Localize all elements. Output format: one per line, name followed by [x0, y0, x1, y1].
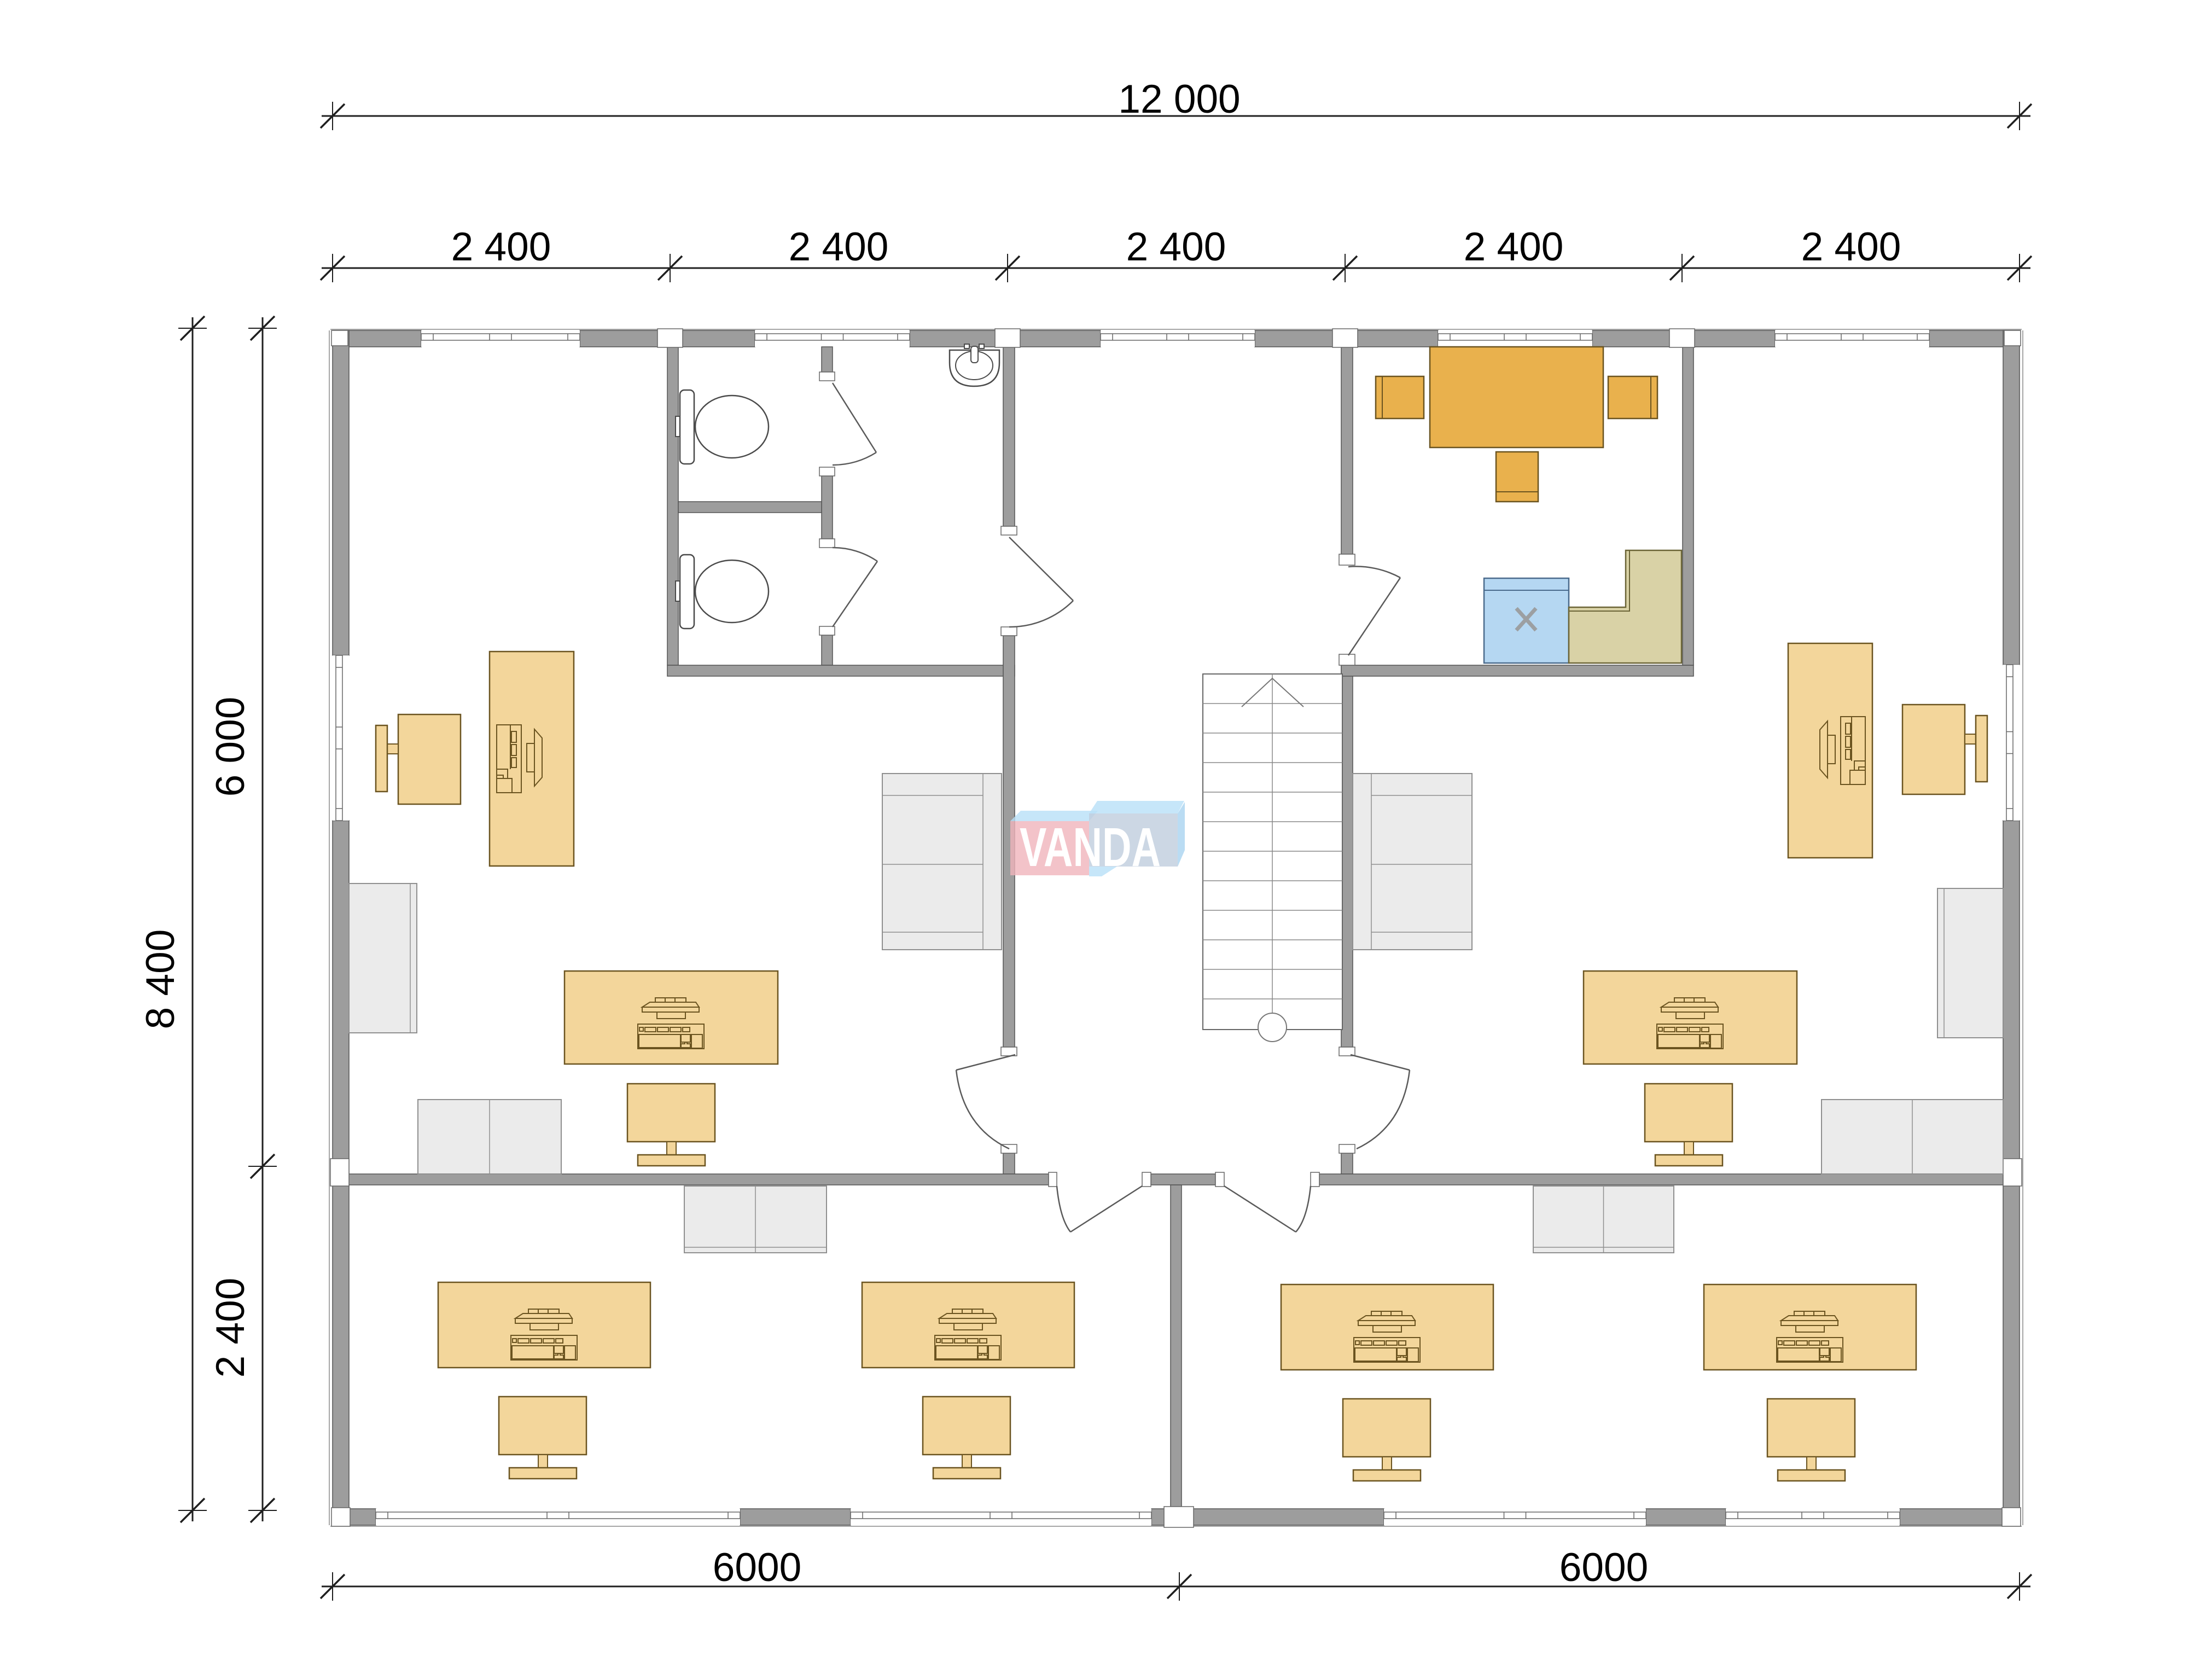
- svg-text:2 400: 2 400: [1464, 225, 1564, 269]
- svg-text:VANDA: VANDA: [1020, 817, 1161, 878]
- svg-text:6 000: 6 000: [208, 697, 253, 797]
- svg-text:2 400: 2 400: [789, 225, 889, 269]
- svg-text:2 400: 2 400: [208, 1278, 253, 1378]
- svg-text:8 400: 8 400: [138, 929, 183, 1030]
- svg-text:6000: 6000: [1559, 1545, 1648, 1590]
- svg-text:2 400: 2 400: [451, 225, 551, 269]
- svg-text:12 000: 12 000: [1118, 77, 1240, 121]
- svg-text:6000: 6000: [713, 1545, 801, 1590]
- svg-text:2 400: 2 400: [1126, 225, 1226, 269]
- svg-text:2 400: 2 400: [1801, 225, 1901, 269]
